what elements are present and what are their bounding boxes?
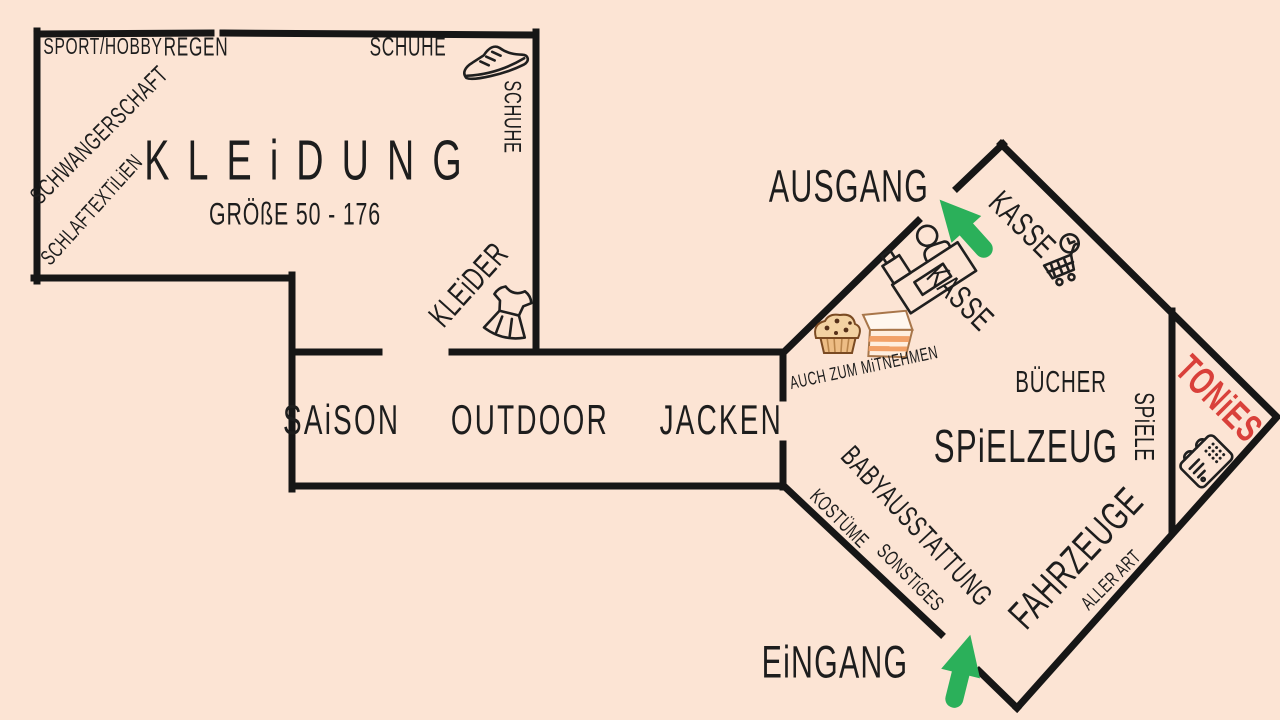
wall-diamond-upper-left-b <box>957 144 1003 188</box>
entrance-arrow-icon <box>935 630 990 704</box>
exit-label-ausgang: AUSGANG <box>769 161 929 212</box>
floor-plan-drawing <box>0 0 1280 720</box>
section-label-regen: REGEN <box>164 33 229 62</box>
wall-diamond-lower-left-a <box>979 671 1017 708</box>
room-label-spielzeug: SPiELZEUG <box>934 422 1118 474</box>
corridor-label-saison-outdoor-jacken: SAiSON OUTDOOR JACKEN <box>283 397 783 445</box>
toniebox-icon <box>1176 431 1234 489</box>
section-label-spiele: SPiELE <box>1128 392 1161 462</box>
sneaker-icon <box>459 39 529 83</box>
section-label-sport-hobby: SPORT/HOBBY <box>43 35 162 62</box>
room-label-size-range: GRÖßE 50 - 176 <box>209 195 381 233</box>
dress-icon <box>483 284 536 342</box>
room-label-kleidung: KLEiDUNG <box>144 127 480 193</box>
entrance-label-eingang: EiNGANG <box>762 637 909 688</box>
section-label-schuhe-wall: SCHUHE <box>497 80 525 153</box>
muffin-icon <box>815 315 860 353</box>
section-label-schuhe: SCHUHE <box>370 33 447 62</box>
store-floor-plan: SPORT/HOBBY REGEN SCHUHE SCHUHE SCHWANGE… <box>0 0 1280 720</box>
section-label-buecher: BÜCHER <box>1015 365 1106 400</box>
